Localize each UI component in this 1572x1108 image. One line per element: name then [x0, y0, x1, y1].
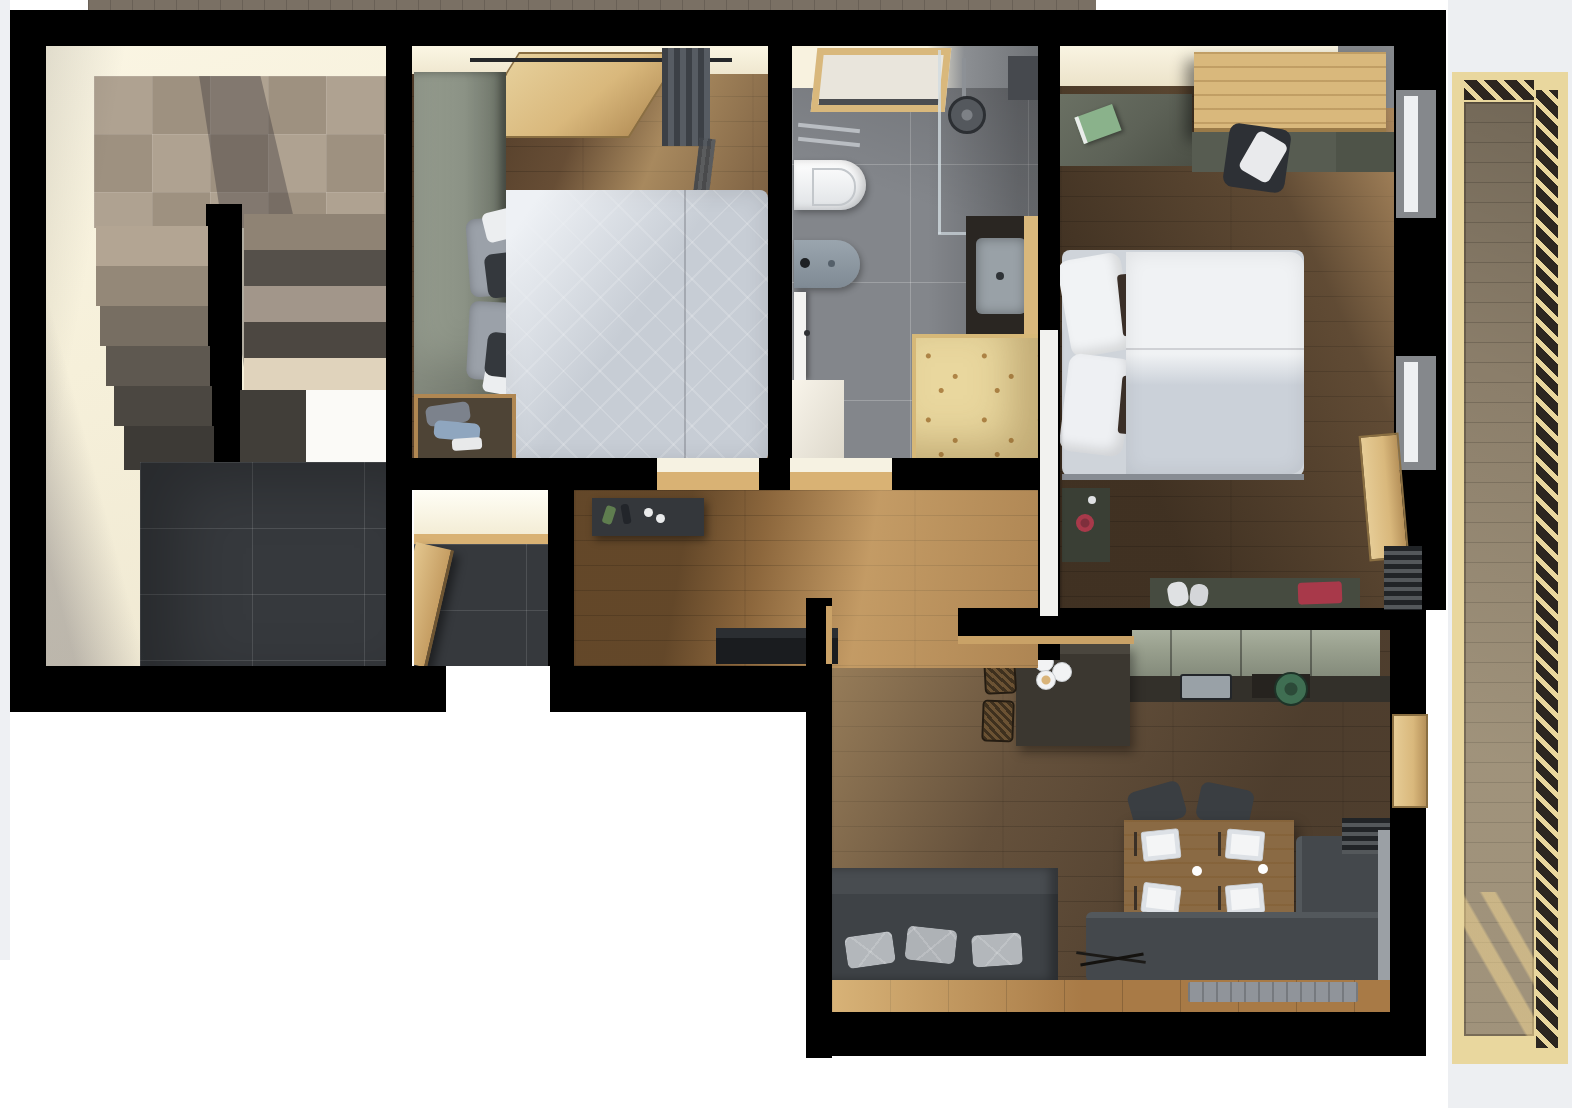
- vanity-wood-panel: [1024, 216, 1038, 336]
- closet-lit-wall: [414, 490, 548, 536]
- cabinet-seam: [1240, 628, 1242, 676]
- vanity-sink: [976, 238, 1026, 314]
- bathroom-window: [811, 48, 952, 112]
- sink-drain: [996, 272, 1004, 280]
- cutlery: [1218, 832, 1221, 856]
- stair-step: [114, 386, 212, 426]
- stair-step: [106, 346, 210, 386]
- shower-corner-shelf: [1008, 56, 1038, 100]
- stair-lit-floor-patch: [306, 390, 386, 464]
- cabinet-seam: [1170, 628, 1172, 676]
- duvet-highlight: [506, 190, 768, 458]
- towel-rail: [798, 123, 860, 133]
- stair-step: [96, 226, 208, 266]
- duvet-split-line: [684, 190, 686, 458]
- hallway-sideboard: [592, 498, 704, 536]
- chair-with-clothes: [1222, 122, 1292, 194]
- bar-stool: [981, 699, 1014, 742]
- wall-mid-horizontal: [386, 458, 1060, 490]
- duvet-crease: [1126, 348, 1304, 350]
- sofa: [832, 868, 1058, 980]
- stair-step: [100, 306, 208, 346]
- window-glass: [1404, 96, 1418, 212]
- plate-with-bread: [1036, 670, 1056, 690]
- candle: [1258, 864, 1268, 874]
- towel-rail: [798, 137, 860, 147]
- slippers: [1189, 583, 1210, 607]
- wall-bath-bedroom2-divider: [1038, 10, 1060, 660]
- stair-step: [244, 322, 386, 358]
- stairwell-dark-tile-floor: [140, 462, 386, 666]
- stair-flight-lower: [96, 226, 214, 470]
- red-towel: [1298, 581, 1343, 605]
- room-bedroom-small: [412, 46, 768, 458]
- bottle-green: [601, 505, 616, 525]
- closet-threshold: [414, 534, 548, 544]
- balcony-deck-sunstreak: [1464, 892, 1534, 1036]
- sofa-pillow: [844, 931, 896, 969]
- bedroom2-window: [1396, 90, 1436, 218]
- page-left-gutter: [0, 0, 10, 960]
- floor-plan-render: [0, 0, 1572, 1108]
- wall-living-bottom: [806, 1012, 1426, 1056]
- cup: [656, 514, 665, 523]
- red-bowl: [1076, 514, 1094, 532]
- bed-frame-edge: [1062, 474, 1304, 480]
- wall-outer-top: [10, 10, 1446, 46]
- upper-roof-wood-strip: [88, 0, 1096, 14]
- bedroom1-door-threshold: [657, 458, 759, 490]
- place-setting: [1225, 882, 1265, 915]
- overhead-pine-cabinet: [1194, 52, 1386, 132]
- living-balcony-door: [1392, 714, 1428, 808]
- bedroom2-window: [1396, 356, 1436, 470]
- room-bedroom-master: [1060, 46, 1394, 608]
- dining-table: [1124, 820, 1294, 924]
- balcony-top-slats: [1464, 80, 1534, 100]
- door-handle: [804, 330, 810, 336]
- bidet-drain: [828, 260, 835, 267]
- area-rug: [1188, 982, 1358, 1002]
- luggage-bench: [414, 394, 516, 458]
- room-entry-closet: [414, 490, 548, 668]
- shower-head: [948, 96, 986, 134]
- balcony-railing: [1536, 90, 1558, 1048]
- wall-outer-right: [1394, 10, 1446, 610]
- sauna-cabinet: [912, 334, 1038, 460]
- bedroom2-open-door-leaf: [1040, 330, 1058, 616]
- clothes-item: [1237, 129, 1288, 184]
- storage-bench: [1150, 578, 1360, 608]
- curtain: [662, 48, 710, 146]
- stair-step: [96, 266, 208, 306]
- room-living-kitchen: [832, 626, 1390, 1012]
- hallway-shoe-bench: [716, 628, 838, 664]
- slippers: [1166, 580, 1190, 607]
- stair-step: [244, 286, 386, 322]
- bottle-dark: [620, 503, 631, 524]
- duvet-master: [1126, 252, 1304, 474]
- cup: [644, 508, 653, 517]
- cup: [1088, 496, 1096, 504]
- place-setting: [1141, 828, 1182, 862]
- sofa-pillow: [904, 925, 957, 964]
- wall-closet-hall-divider: [548, 490, 574, 668]
- bidet: [794, 240, 860, 288]
- toilet: [794, 160, 866, 210]
- cutlery: [1134, 832, 1137, 856]
- bathroom-door-leaf: [794, 292, 806, 380]
- kitchen-sink: [1180, 674, 1232, 700]
- shower-glass-panel: [938, 50, 941, 234]
- wall-living-right: [1390, 608, 1426, 1056]
- stair-step: [244, 214, 386, 250]
- cooking-pot: [1274, 672, 1308, 706]
- nightstand: [1062, 488, 1110, 562]
- wall-outer-left: [10, 10, 46, 712]
- room-hallway: [574, 490, 1038, 668]
- candle: [1192, 866, 1202, 876]
- sofa-pillow: [971, 932, 1023, 967]
- clothes-item: [452, 437, 483, 451]
- wall-stairwell-divider: [386, 10, 412, 712]
- exterior-door-gap: [446, 666, 550, 732]
- bathroom-door-threshold: [790, 458, 892, 490]
- wall-living-left: [806, 666, 832, 1058]
- cutlery: [1218, 886, 1221, 910]
- bidet-faucet: [800, 258, 810, 268]
- shelf-panel: [1336, 132, 1394, 172]
- place-setting: [1225, 828, 1265, 861]
- cabinet-seam: [1310, 628, 1312, 676]
- room-stairwell: [46, 46, 386, 666]
- wall-bedroom1-bath-divider: [768, 10, 792, 490]
- toilet-seat-line: [812, 168, 856, 206]
- room-bathroom: [792, 46, 1038, 460]
- stair-flight-upper: [244, 214, 386, 396]
- corner-bench-bottom: [1086, 912, 1390, 982]
- stair-step: [244, 250, 386, 286]
- cutlery: [1134, 886, 1137, 910]
- living-window-glass: [1378, 830, 1390, 980]
- bathroom-lit-wall-corner: [792, 380, 844, 460]
- window-glass: [1404, 362, 1418, 462]
- duvet: [506, 190, 768, 458]
- balcony: [1452, 72, 1568, 1064]
- stair-step-shadow-block: [240, 390, 306, 462]
- wall-bottom-left-section: [10, 666, 808, 712]
- kitchen-upper-cabinets: [1100, 628, 1380, 676]
